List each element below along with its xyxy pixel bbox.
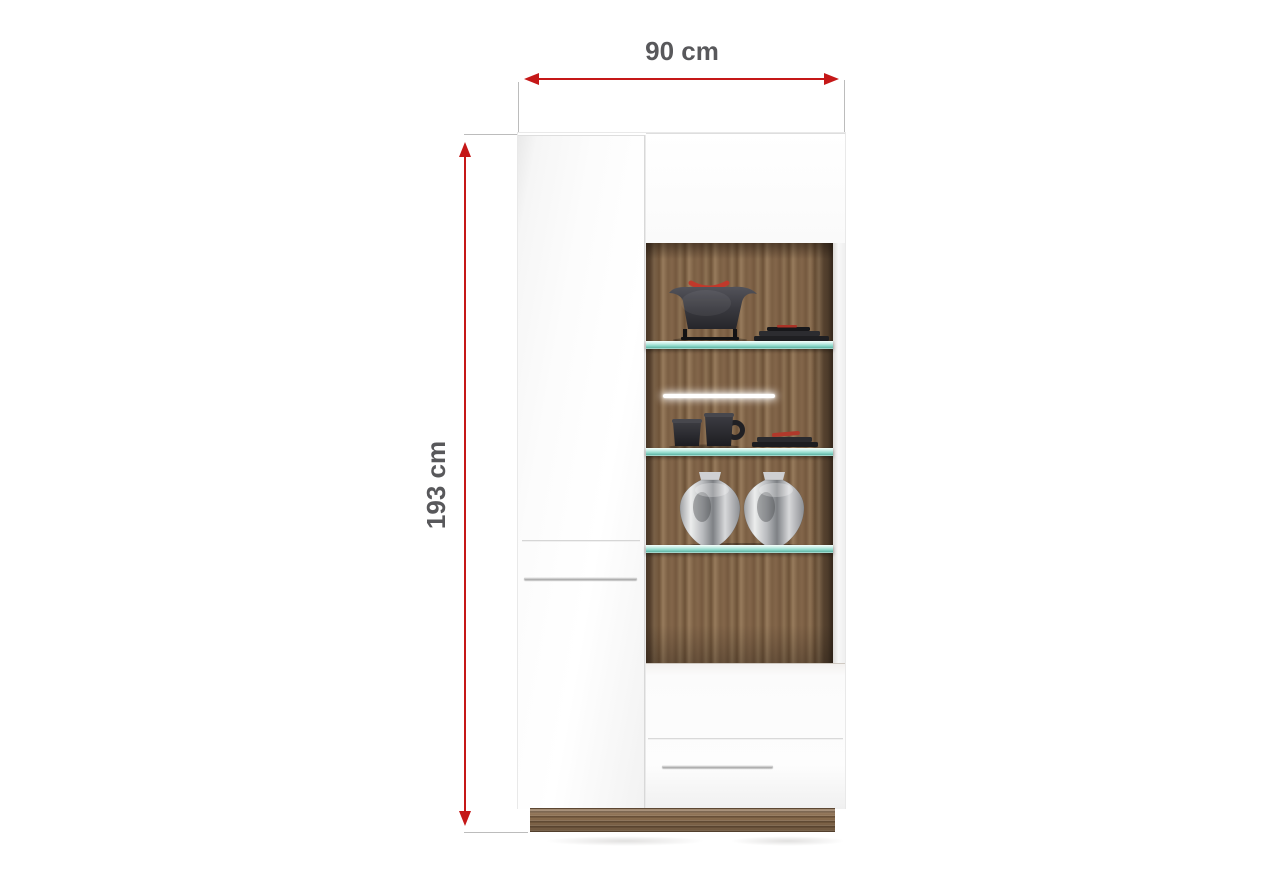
product-dimension-diagram: 90 cm 193 cm: [0, 0, 1280, 880]
glass-shelf-1: [646, 341, 833, 349]
extension-line-height-top: [464, 134, 518, 135]
floor-shadow: [545, 836, 705, 846]
extension-line-height-bottom: [464, 832, 528, 833]
left-door-handle: [524, 577, 637, 580]
drawer-handle: [662, 765, 773, 768]
height-dimension-label: 193 cm: [421, 405, 451, 565]
width-dimension-arrow: [524, 71, 839, 87]
height-arrow-line: [464, 153, 466, 815]
extension-line-top-right: [844, 80, 845, 133]
bottom-drawer-panel: [646, 663, 845, 809]
top-cabinet-panel: [646, 133, 845, 245]
left-door-seam: [522, 540, 640, 542]
extension-line-top-left: [518, 82, 519, 133]
arrowhead-right-icon: [824, 73, 839, 85]
glass-shelf-2: [646, 448, 833, 456]
floor-shadow: [730, 836, 845, 846]
glass-shelf-3: [646, 545, 833, 553]
silver-vases-figure: [680, 472, 804, 549]
espresso-cups-figure: [669, 413, 743, 450]
led-light-strip: [663, 394, 775, 398]
drawer-seam: [648, 738, 843, 740]
right-frame-panel: [833, 243, 845, 663]
wood-plinth-base: [530, 808, 835, 832]
stacked-plates-figure: [754, 325, 829, 341]
display-cabinet-image: [518, 133, 845, 808]
teapot-figure: [669, 283, 757, 343]
height-dimension-arrow: [457, 142, 473, 826]
width-arrow-line: [535, 78, 828, 80]
arrowhead-down-icon: [459, 811, 471, 826]
small-plates-figure: [752, 431, 818, 447]
glass-display-interior: [646, 243, 833, 663]
width-dimension-label: 90 cm: [600, 36, 764, 66]
left-door-panel: [518, 135, 644, 809]
